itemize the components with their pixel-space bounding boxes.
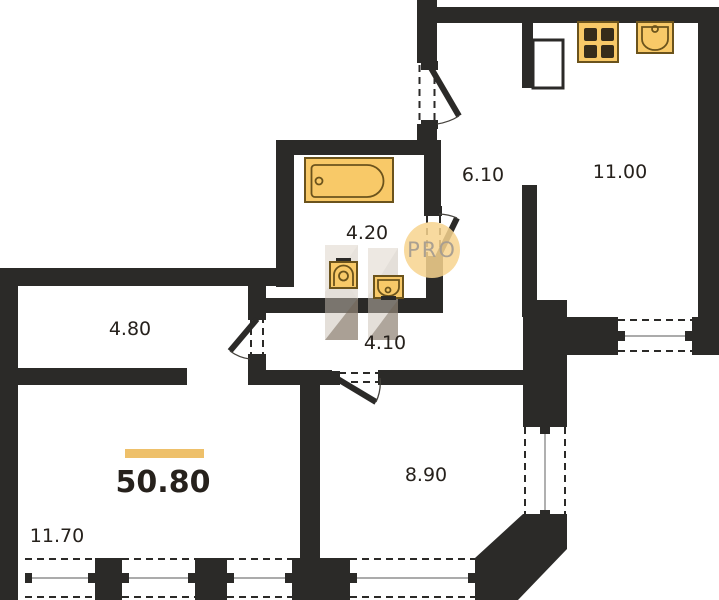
window-living-1	[25, 559, 95, 597]
exterior-wall-top	[437, 7, 719, 23]
kitchen-sink-icon	[637, 20, 673, 53]
window-bedroom-bottom	[350, 559, 475, 597]
room-label-bedroom: 8.90	[405, 464, 447, 486]
window-living-2	[122, 559, 195, 597]
kitchen-wall-bottom-corner	[692, 317, 719, 355]
exterior-wall-left	[0, 268, 18, 600]
living-bedroom-divider-wall	[300, 378, 320, 558]
corridor-wall-top	[0, 268, 294, 286]
window-living-3	[227, 559, 292, 597]
window-kitchen	[618, 320, 692, 351]
room-label-living: 11.70	[30, 525, 84, 547]
ventilation-shaft	[533, 40, 563, 88]
bedroom-door	[336, 373, 380, 402]
room-label-corridor: 4.80	[109, 318, 151, 340]
room-label-bathroom: 4.20	[346, 222, 388, 244]
hall-kitchen-divider-upper	[522, 23, 533, 88]
pro-watermark-text: PRO	[407, 238, 457, 262]
window-pier-2	[195, 558, 227, 600]
chamfer-corner-wall	[475, 514, 567, 600]
hall-kitchen-divider-lower	[522, 185, 537, 317]
hall-wall-bottom-right	[378, 370, 523, 385]
corridor-door	[230, 316, 263, 359]
bathtub-icon	[305, 158, 393, 202]
bathroom-wall-left	[276, 140, 294, 287]
corridor-door-wall-upper	[248, 286, 266, 313]
toilet-icon	[330, 258, 357, 288]
walls	[0, 0, 719, 600]
window-pier-3	[292, 558, 350, 600]
bathroom-wall-top	[276, 140, 437, 155]
window-pier-1	[95, 558, 122, 600]
entry-door	[420, 65, 460, 124]
floor-plan: PRO 4.80 11.70 8.90 4.10 4.20 6.10 11.00…	[0, 0, 719, 600]
pro-watermark: PRO	[404, 222, 460, 278]
corridor-wall-bottom	[18, 368, 187, 385]
exterior-wall-right	[698, 7, 719, 355]
stove-icon	[578, 20, 618, 62]
bathroom-wall-right-upper	[424, 140, 441, 208]
room-label-inner-hall: 4.10	[364, 332, 406, 354]
kitchen-wall-bottom	[537, 317, 618, 355]
room-label-kitchen: 11.00	[593, 161, 647, 183]
windows	[25, 320, 692, 597]
window-bedroom-right	[525, 427, 565, 517]
total-area-label: 50.80	[116, 465, 211, 500]
entry-wall-upper	[417, 0, 437, 63]
floor-plan-page: PRO 4.80 11.70 8.90 4.10 4.20 6.10 11.00…	[0, 0, 719, 600]
bathroom-sink-icon	[374, 276, 403, 300]
total-area-accent-bar	[125, 449, 204, 458]
room-label-entry-hall: 6.10	[462, 164, 504, 186]
